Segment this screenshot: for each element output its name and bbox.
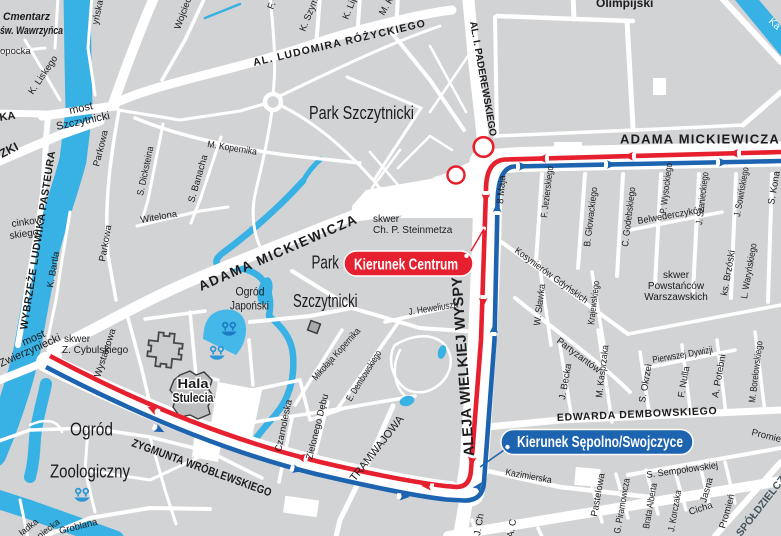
svg-text:KA: KA <box>0 110 16 124</box>
svg-text:skwer: skwer <box>663 270 690 281</box>
svg-text:Powstańców: Powstańców <box>648 281 705 292</box>
svg-text:Park Szczytnicki: Park Szczytnicki <box>309 103 414 123</box>
svg-text:Szczytnicki: Szczytnicki <box>293 291 358 311</box>
svg-text:Hala: Hala <box>178 376 210 391</box>
svg-text:ADAMA MICKIEWICZA: ADAMA MICKIEWICZA <box>620 132 780 147</box>
svg-text:skwer: skwer <box>373 214 400 225</box>
svg-text:Warszawskich: Warszawskich <box>644 292 708 303</box>
svg-text:Cmentarz: Cmentarz <box>3 11 50 23</box>
svg-text:św. Wawrzyńca: św. Wawrzyńca <box>0 25 63 37</box>
svg-text:Park: Park <box>312 253 340 273</box>
svg-text:Ch. P. Steinmetza: Ch. P. Steinmetza <box>373 225 453 236</box>
svg-text:opocka: opocka <box>0 46 31 57</box>
svg-text:Kierunek Sępolno/Swojczyce: Kierunek Sępolno/Swojczyce <box>517 434 683 451</box>
svg-text:Stulecia: Stulecia <box>173 390 215 405</box>
svg-text:Zoologiczny: Zoologiczny <box>50 462 130 482</box>
svg-text:Z. Cybulskiego: Z. Cybulskiego <box>62 345 129 356</box>
svg-text:Ogród: Ogród <box>70 420 113 440</box>
svg-text:Olimpijski: Olimpijski <box>596 0 653 10</box>
svg-text:skwer: skwer <box>64 334 91 345</box>
svg-text:Kierunek Centrum: Kierunek Centrum <box>354 257 458 274</box>
svg-text:Japoński: Japoński <box>230 299 269 313</box>
svg-text:Ogród: Ogród <box>236 285 265 299</box>
